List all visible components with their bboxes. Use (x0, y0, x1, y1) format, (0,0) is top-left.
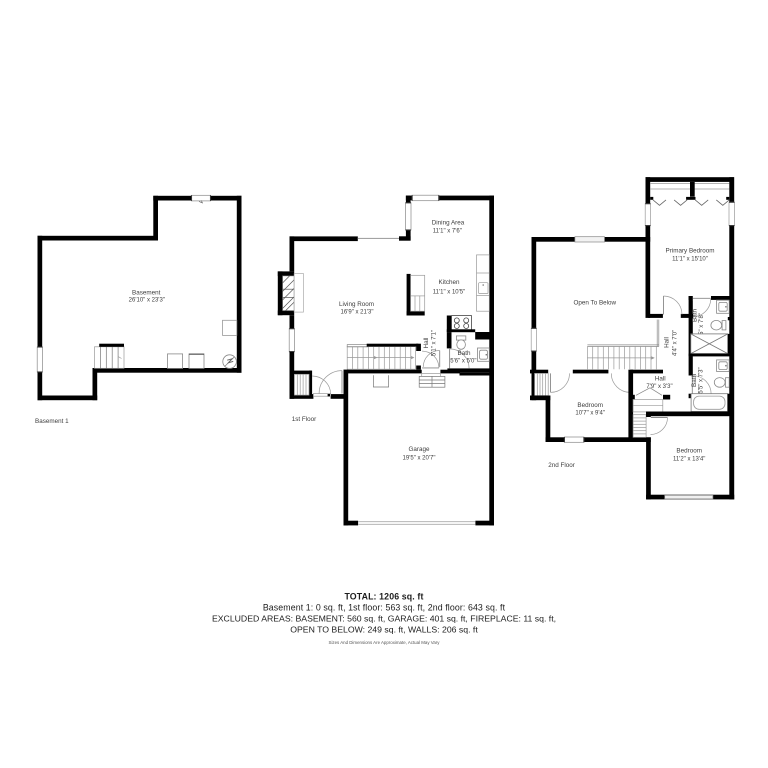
svg-text:1st Floor: 1st Floor (292, 416, 317, 423)
svg-text:Hall: Hall (423, 338, 430, 349)
svg-text:Hall: Hall (655, 375, 666, 382)
svg-text:16'9" x 21'3": 16'9" x 21'3" (341, 310, 374, 316)
svg-text:2nd Floor: 2nd Floor (548, 462, 575, 469)
svg-text:Dining Area: Dining Area (432, 219, 465, 226)
svg-text:Primary Bedroom: Primary Bedroom (666, 248, 715, 255)
svg-text:TOTAL: 1206 sq. ft: TOTAL: 1206 sq. ft (344, 591, 423, 601)
svg-text:11'1" x 7'6": 11'1" x 7'6" (433, 228, 462, 234)
svg-text:Living Room: Living Room (339, 301, 374, 308)
svg-text:Bath: Bath (458, 350, 471, 357)
svg-text:5'6" x 5'0": 5'6" x 5'0" (450, 358, 476, 364)
svg-text:26'10" x 23'3": 26'10" x 23'3" (129, 297, 165, 303)
svg-text:Sizes And Dimensions Are Appro: Sizes And Dimensions Are Approximate, Ac… (329, 640, 441, 645)
svg-text:19'5" x 20'7": 19'5" x 20'7" (403, 455, 436, 461)
svg-text:Bath: Bath (691, 309, 698, 322)
svg-text:10'7" x 9'4": 10'7" x 9'4" (575, 410, 605, 416)
svg-text:4'4" x 7'0": 4'4" x 7'0" (672, 330, 678, 356)
svg-text:Basement: Basement (132, 289, 161, 296)
svg-text:Basement 1: 0 sq. ft, 1st floo: Basement 1: 0 sq. ft, 1st floor: 563 sq.… (263, 602, 506, 612)
svg-text:11'1" x 15'10": 11'1" x 15'10" (672, 256, 708, 262)
svg-text:Hall: Hall (663, 337, 670, 348)
svg-text:Kitchen: Kitchen (438, 279, 460, 286)
svg-text:11'2" x 13'4": 11'2" x 13'4" (673, 456, 705, 462)
svg-text:Basement 1: Basement 1 (35, 418, 69, 425)
svg-text:7'9" x 3'3": 7'9" x 3'3" (646, 384, 672, 390)
svg-text:5'1" x 7'1": 5'1" x 7'1" (432, 330, 438, 356)
svg-text:Bedroom: Bedroom (577, 402, 603, 409)
svg-text:EXCLUDED AREAS: BASEMENT: 560: EXCLUDED AREAS: BASEMENT: 560 sq. ft, GA… (212, 613, 556, 623)
svg-text:Garage: Garage (408, 446, 430, 453)
svg-text:Bedroom: Bedroom (676, 448, 702, 455)
svg-text:5'5" x 7'3": 5'5" x 7'3" (699, 367, 705, 393)
svg-text:OPEN TO BELOW: 249 sq. ft, WAL: OPEN TO BELOW: 249 sq. ft, WALLS: 206 sq… (290, 624, 478, 634)
svg-text:Bath: Bath (691, 374, 698, 387)
svg-text:Open To Below: Open To Below (574, 300, 617, 307)
svg-text:11'1" x 10'5": 11'1" x 10'5" (433, 289, 465, 295)
